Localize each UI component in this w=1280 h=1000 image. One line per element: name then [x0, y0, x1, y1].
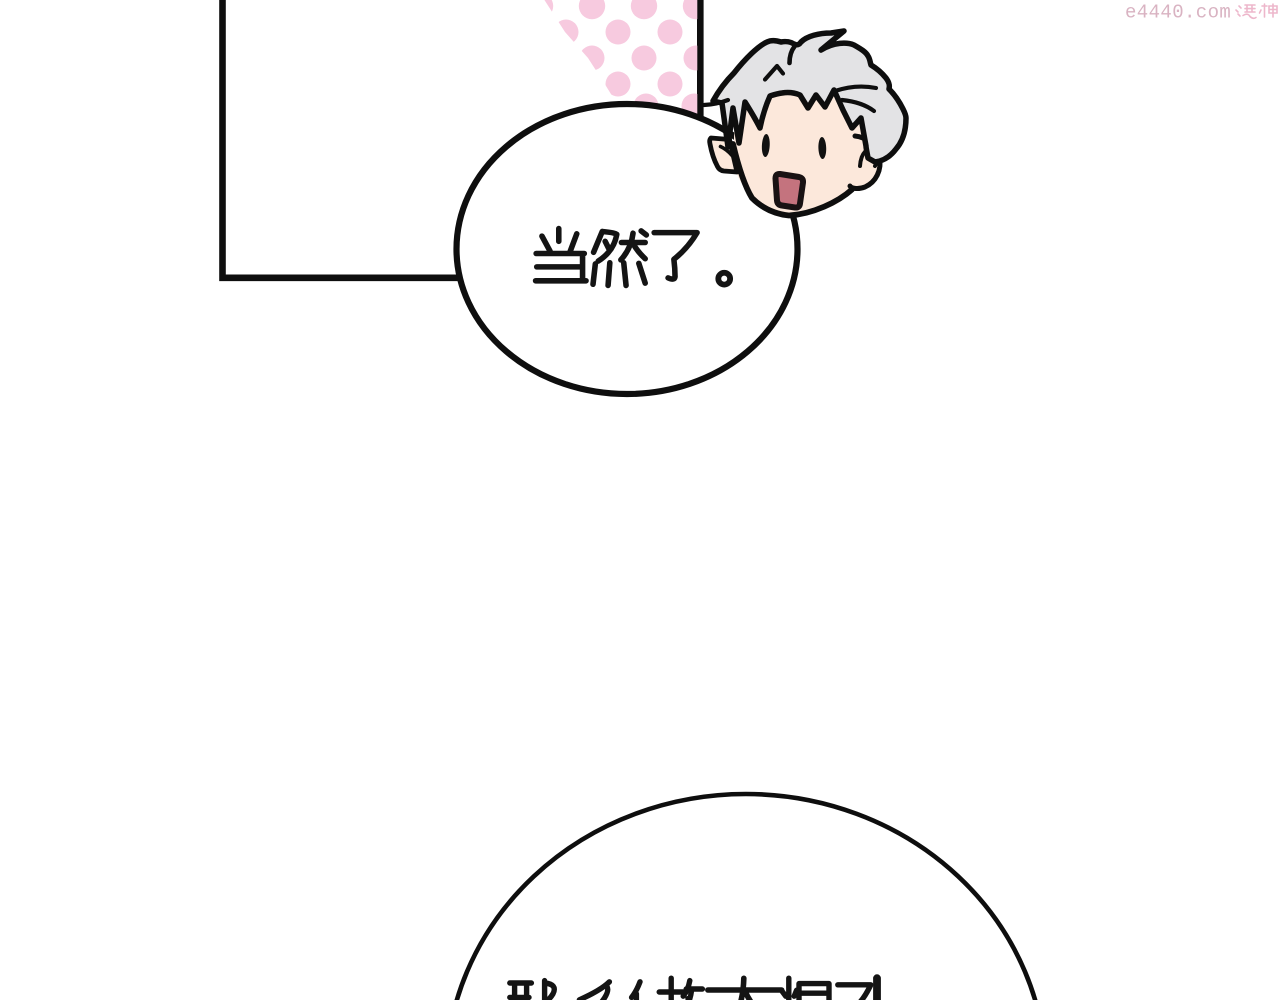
- svg-text:e4440.com: e4440.com: [1125, 2, 1231, 24]
